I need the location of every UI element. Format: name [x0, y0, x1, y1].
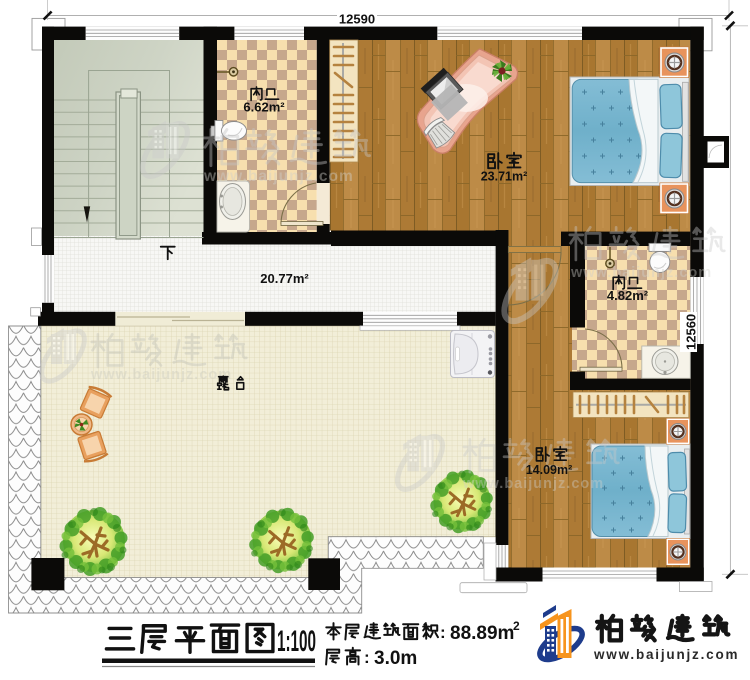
svg-text:4.82m²: 4.82m² — [607, 288, 649, 303]
svg-text:12560: 12560 — [684, 314, 699, 350]
svg-text::: : — [440, 623, 446, 642]
svg-text:1:100: 1:100 — [277, 625, 316, 658]
svg-text:www.baijunjz.com: www.baijunjz.com — [570, 265, 712, 281]
svg-text:www.baijunjz.com: www.baijunjz.com — [593, 647, 739, 662]
svg-text:www.baijunjz.com: www.baijunjz.com — [203, 168, 354, 185]
svg-text:6.62m²: 6.62m² — [243, 100, 285, 115]
svg-text:3.0m: 3.0m — [374, 648, 417, 669]
svg-text:14.09m²: 14.09m² — [526, 463, 573, 477]
svg-text::: : — [364, 648, 370, 667]
svg-text:2: 2 — [513, 619, 520, 633]
svg-text:www.baijunjz.com: www.baijunjz.com — [90, 367, 232, 383]
svg-text:23.71m²: 23.71m² — [481, 170, 528, 184]
svg-text:88.89m: 88.89m — [450, 623, 514, 644]
svg-text:12590: 12590 — [339, 12, 375, 27]
svg-text:20.77m²: 20.77m² — [260, 271, 309, 286]
svg-text:www.baijunjz.com: www.baijunjz.com — [462, 476, 604, 492]
